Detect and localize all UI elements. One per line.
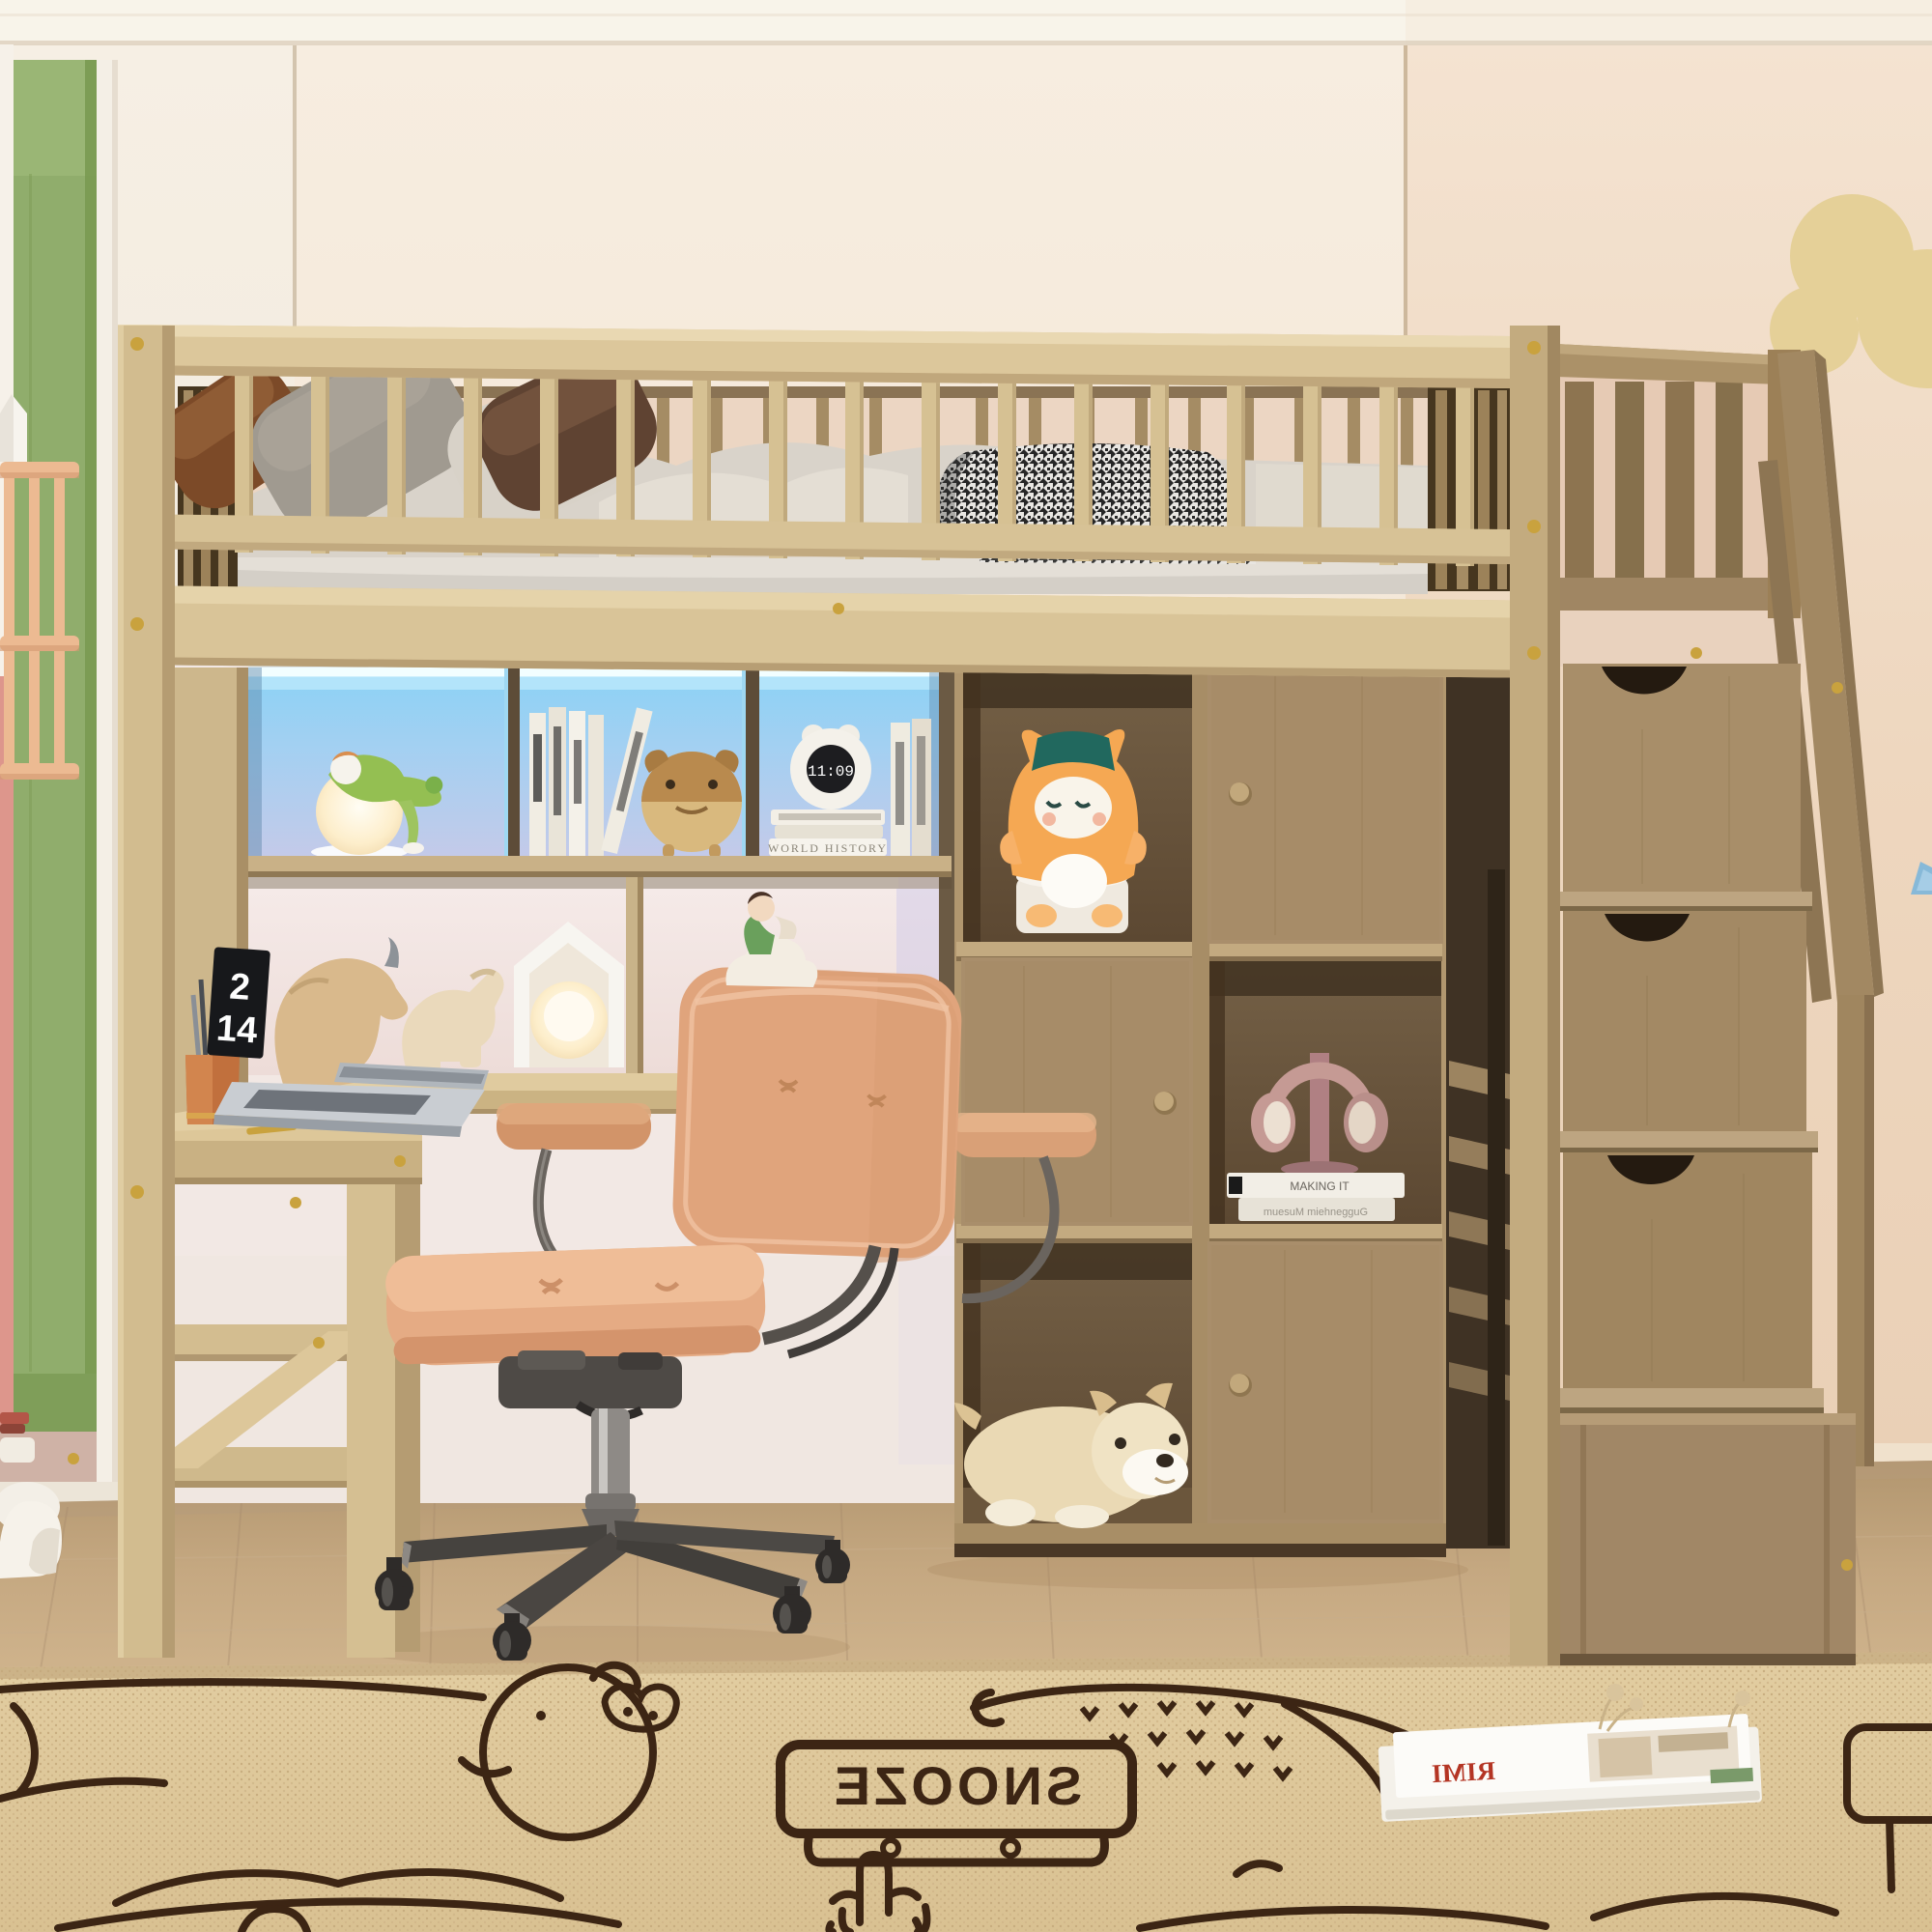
svg-text:RIMI: RIMI: [1431, 1756, 1495, 1788]
svg-text:SNOOZE: SNOOZE: [831, 1755, 1082, 1816]
svg-text:muesuM miehnegguG: muesuM miehnegguG: [1264, 1207, 1368, 1218]
svg-text:WORLD HISTORY: WORLD HISTORY: [768, 841, 888, 855]
svg-text:11:09: 11:09: [808, 763, 854, 781]
svg-text:2: 2: [228, 966, 251, 1008]
svg-text:MAKING IT: MAKING IT: [1290, 1179, 1350, 1193]
svg-text:14: 14: [215, 1009, 259, 1052]
